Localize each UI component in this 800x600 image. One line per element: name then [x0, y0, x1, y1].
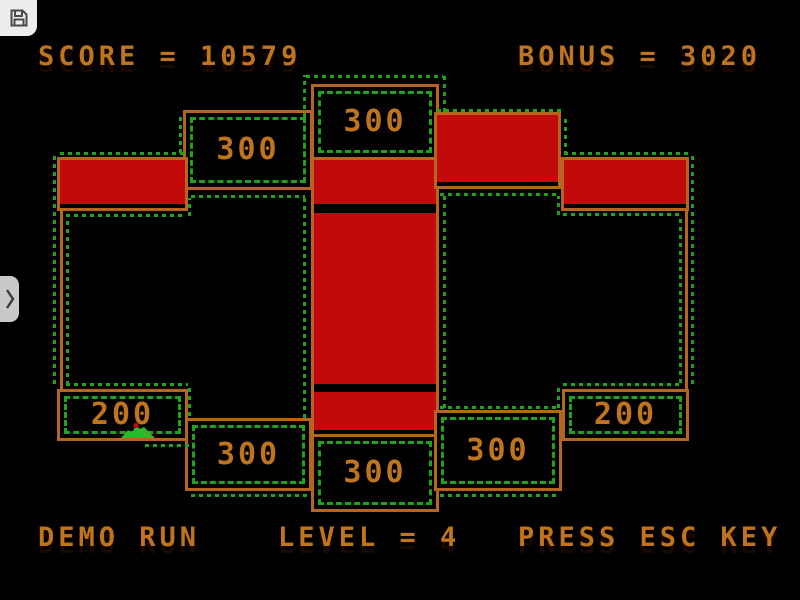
floppy-disk-icon: [8, 7, 30, 29]
wall: [685, 211, 688, 389]
bonus-box-top-center: 300: [314, 87, 436, 157]
bonus-box-bottom-center: 300: [314, 437, 436, 509]
territory-dotted-line: [443, 196, 446, 408]
territory-dotted-line: [53, 152, 56, 384]
territory-dotted-line: [303, 198, 306, 418]
claimed-block-top-right: [434, 112, 561, 189]
game-screen: SCORE = 10579 BONUS = 3020 DEMO RUN LEVE…: [0, 0, 800, 600]
claimed-block: [314, 392, 436, 434]
chevron-right-icon: [4, 286, 16, 312]
claimed-block: [314, 213, 436, 388]
bonus-box-lower-right-mid: 300: [434, 410, 562, 491]
claimed-block-left-bar: [57, 157, 188, 211]
bonus-value: 300: [343, 458, 406, 488]
territory-dotted-line: [440, 494, 559, 497]
bonus-value: 300: [466, 436, 529, 466]
territory-dotted-line: [557, 196, 560, 215]
claimed-block: [314, 160, 436, 208]
territory-dotted-line: [179, 115, 182, 153]
territory-dotted-line: [563, 383, 682, 386]
territory-dotted-line: [188, 198, 191, 216]
territory-dotted-line: [564, 152, 689, 155]
territory-dotted-line: [440, 193, 557, 196]
score-text: SCORE = 10579: [38, 43, 301, 70]
bonus-text: BONUS = 3020: [518, 43, 761, 70]
territory-dotted-line: [145, 444, 190, 447]
save-button[interactable]: [0, 0, 37, 36]
territory-dotted-line: [191, 195, 305, 198]
creature-dot: [133, 423, 138, 428]
territory-dotted-line: [564, 115, 567, 155]
territory-dotted-line: [303, 75, 306, 117]
territory-dotted-line: [679, 217, 682, 383]
wall: [60, 211, 63, 389]
bonus-box-lower-right: 200: [562, 389, 689, 441]
territory-dotted-line: [188, 386, 191, 416]
territory-dotted-line: [66, 217, 69, 385]
territory-dotted-line: [443, 75, 446, 112]
territory-dotted-line: [66, 383, 188, 386]
bonus-value: 300: [217, 440, 280, 470]
bonus-value: 200: [594, 400, 657, 430]
territory-dotted-line: [437, 109, 561, 112]
territory-dotted-line: [60, 152, 188, 155]
territory-dotted-line: [557, 386, 560, 408]
level-text: LEVEL = 4: [278, 524, 460, 551]
bonus-value: 300: [216, 135, 279, 165]
claimed-block-right-bar: [561, 157, 689, 211]
territory-dotted-line: [691, 152, 694, 384]
sidebar-toggle-button[interactable]: [0, 276, 19, 322]
demo-run-text: DEMO RUN: [38, 524, 200, 551]
esc-hint-text: PRESS ESC KEY: [518, 524, 781, 551]
bonus-box-upper-left: 300: [183, 110, 313, 190]
territory-dotted-line: [191, 494, 309, 497]
territory-dotted-line: [440, 406, 558, 409]
territory-dotted-line: [563, 213, 681, 216]
territory-dotted-line: [66, 214, 186, 217]
player-creature-sprite: [120, 421, 156, 439]
bonus-box-lower-left-mid: 300: [185, 418, 312, 491]
bonus-value: 300: [343, 107, 406, 137]
territory-dotted-line: [306, 75, 443, 78]
center-column: 300 300: [311, 84, 439, 512]
